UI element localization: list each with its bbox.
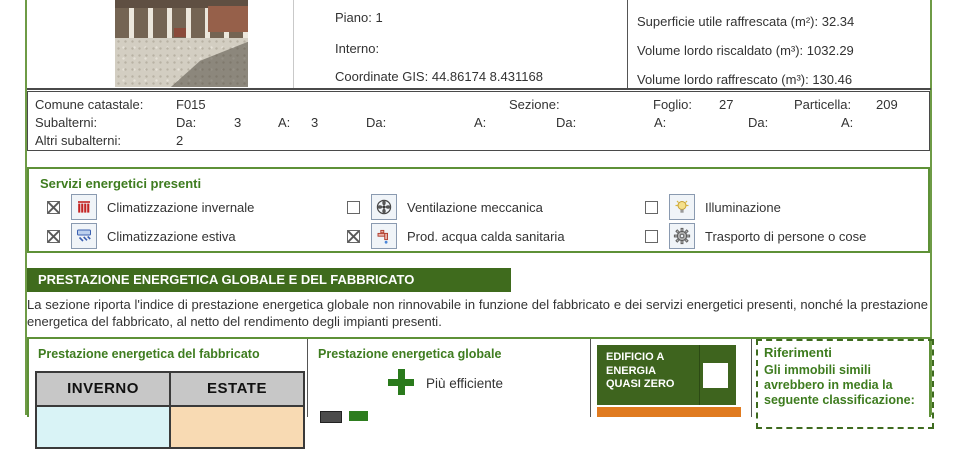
- ape-document-page: { "property": { "fields_left": [ {"label…: [0, 0, 960, 415]
- field-value: 44.86174 8.431168: [432, 69, 543, 84]
- field-label: Volume lordo raffrescato (m³):: [637, 72, 809, 87]
- section-description: La sezione riporta l'indice di prestazio…: [27, 296, 928, 330]
- energy-scale-house-icon: [320, 411, 342, 423]
- da-label: Da:: [176, 115, 196, 130]
- energy-class-orange-bar: [597, 407, 741, 417]
- a-label: A:: [841, 115, 853, 130]
- service-label: Climatizzazione estiva: [107, 229, 236, 244]
- table-header-row: INVERNO ESTATE: [37, 373, 303, 405]
- a-label: A:: [474, 115, 486, 130]
- panel-divider-1: [307, 339, 308, 417]
- section-header-prestazione-globale: PRESTAZIONE ENERGETICA GLOBALE E DEL FAB…: [27, 268, 511, 292]
- servizi-title: Servizi energetici presenti: [40, 176, 201, 191]
- inverno-cell: [37, 407, 171, 447]
- field-label: Volume lordo riscaldato (m³):: [637, 43, 803, 58]
- table-data-row: [37, 405, 303, 447]
- lightbulb-icon: [669, 194, 695, 220]
- field-value: 1032.29: [807, 43, 854, 58]
- field-label: Superficie utile raffrescata (m²):: [637, 14, 818, 29]
- panel-divider-3: [751, 339, 752, 417]
- da-value: 3: [234, 115, 241, 130]
- checkbox-unchecked-icon: [645, 230, 658, 243]
- catastale-row-1: Comune catastale: F015 Sezione: Foglio: …: [28, 97, 929, 115]
- field-volume-raffrescato: Volume lordo raffrescato (m³): 130.46: [637, 72, 852, 87]
- estate-header: ESTATE: [171, 373, 303, 405]
- service-item-illuminazione: Illuminazione: [645, 194, 781, 220]
- dati-catastali-box: Comune catastale: F015 Sezione: Foglio: …: [27, 91, 930, 151]
- riferimenti-text: Gli immobili simili avrebbero in media l…: [764, 363, 922, 408]
- service-label: Trasporto di persone o cose: [705, 229, 866, 244]
- checkbox-checked-icon: [47, 201, 60, 214]
- field-volume-riscaldato: Volume lordo riscaldato (m³): 1032.29: [637, 43, 854, 58]
- sezione-label: Sezione:: [509, 97, 560, 112]
- radiator-icon: [71, 194, 97, 220]
- catastale-row-2: Subalterni: Da: 3 A: 3 Da: A: Da: A: Da:…: [28, 115, 929, 133]
- service-item-climatizzazione-invernale: Climatizzazione invernale: [47, 194, 254, 220]
- catastale-row-3: Altri subalterni: 2: [28, 133, 929, 151]
- property-photo: [115, 0, 248, 87]
- field-value: 130.46: [812, 72, 852, 87]
- service-label: Illuminazione: [705, 200, 781, 215]
- field-value: 32.34: [822, 14, 855, 29]
- a-value: 3: [311, 115, 318, 130]
- field-label: Interno:: [335, 41, 379, 56]
- subalterni-label: Subalterni:: [35, 115, 97, 130]
- field-label: Coordinate GIS:: [335, 69, 428, 84]
- comune-catastale-value: F015: [176, 97, 206, 112]
- table-divider-dark: [627, 0, 628, 88]
- service-item-acqua-calda-sanitaria: Prod. acqua calda sanitaria: [347, 223, 565, 249]
- foglio-label: Foglio:: [653, 97, 692, 112]
- field-value: 1: [376, 10, 383, 25]
- estate-cell: [171, 407, 303, 447]
- servizi-energetici-box: Servizi energetici presenti Climatizzazi…: [27, 167, 930, 253]
- field-interno: Interno:: [335, 41, 379, 56]
- checkbox-checked-icon: [47, 230, 60, 243]
- riferimenti-title: Riferimenti: [764, 345, 932, 360]
- energy-scale-class-a4-icon: [349, 411, 368, 421]
- checkbox-unchecked-icon: [645, 201, 658, 214]
- nzeb-badge: EDIFICIO A ENERGIA QUASI ZERO: [597, 345, 736, 405]
- da-label: Da:: [556, 115, 576, 130]
- panel-divider-2: [590, 339, 591, 417]
- checkbox-unchecked-icon: [347, 201, 360, 214]
- service-item-climatizzazione-estiva: Climatizzazione estiva: [47, 223, 236, 249]
- photo-brick-wall: [208, 6, 248, 32]
- more-efficient-plus-icon: [388, 369, 414, 395]
- fabbricato-title: Prestazione energetica del fabbricato: [38, 347, 260, 361]
- a-label: A:: [278, 115, 290, 130]
- gear-icon: [669, 223, 695, 249]
- field-label: Piano:: [335, 10, 372, 25]
- nzeb-checkbox-icon: [703, 363, 728, 388]
- nzeb-badge-divider: [699, 345, 700, 405]
- table-bottom-border: [27, 88, 931, 90]
- air-conditioner-icon: [71, 223, 97, 249]
- da-label: Da:: [748, 115, 768, 130]
- photo-equipment: [174, 28, 186, 37]
- prestazione-panel: Prestazione energetica del fabbricato IN…: [27, 337, 931, 417]
- table-divider-light: [293, 0, 294, 88]
- riferimenti-box: Riferimenti Gli immobili simili avrebber…: [756, 339, 934, 429]
- foglio-value: 27: [719, 97, 733, 112]
- field-coordinate-gis: Coordinate GIS: 44.86174 8.431168: [335, 69, 543, 84]
- particella-value: 209: [876, 97, 898, 112]
- inverno-header: INVERNO: [37, 373, 171, 405]
- comune-catastale-label: Comune catastale:: [35, 97, 143, 112]
- fan-icon: [371, 194, 397, 220]
- inverno-estate-table: INVERNO ESTATE: [35, 371, 305, 449]
- particella-label: Particella:: [794, 97, 851, 112]
- service-item-ventilazione-meccanica: Ventilazione meccanica: [347, 194, 543, 220]
- service-label: Prod. acqua calda sanitaria: [407, 229, 565, 244]
- service-label: Ventilazione meccanica: [407, 200, 543, 215]
- a-label: A:: [654, 115, 666, 130]
- faucet-icon: [371, 223, 397, 249]
- more-efficient-label: Più efficiente: [426, 376, 503, 391]
- globale-title: Prestazione energetica globale: [318, 347, 501, 361]
- da-label: Da:: [366, 115, 386, 130]
- field-piano: Piano: 1: [335, 10, 383, 25]
- field-superficie-raffrescata: Superficie utile raffrescata (m²): 32.34: [637, 14, 854, 29]
- service-label: Climatizzazione invernale: [107, 200, 254, 215]
- service-item-trasporto: Trasporto di persone o cose: [645, 223, 866, 249]
- altri-subalterni-label: Altri subalterni:: [35, 133, 121, 148]
- altri-subalterni-value: 2: [176, 133, 183, 148]
- checkbox-checked-icon: [347, 230, 360, 243]
